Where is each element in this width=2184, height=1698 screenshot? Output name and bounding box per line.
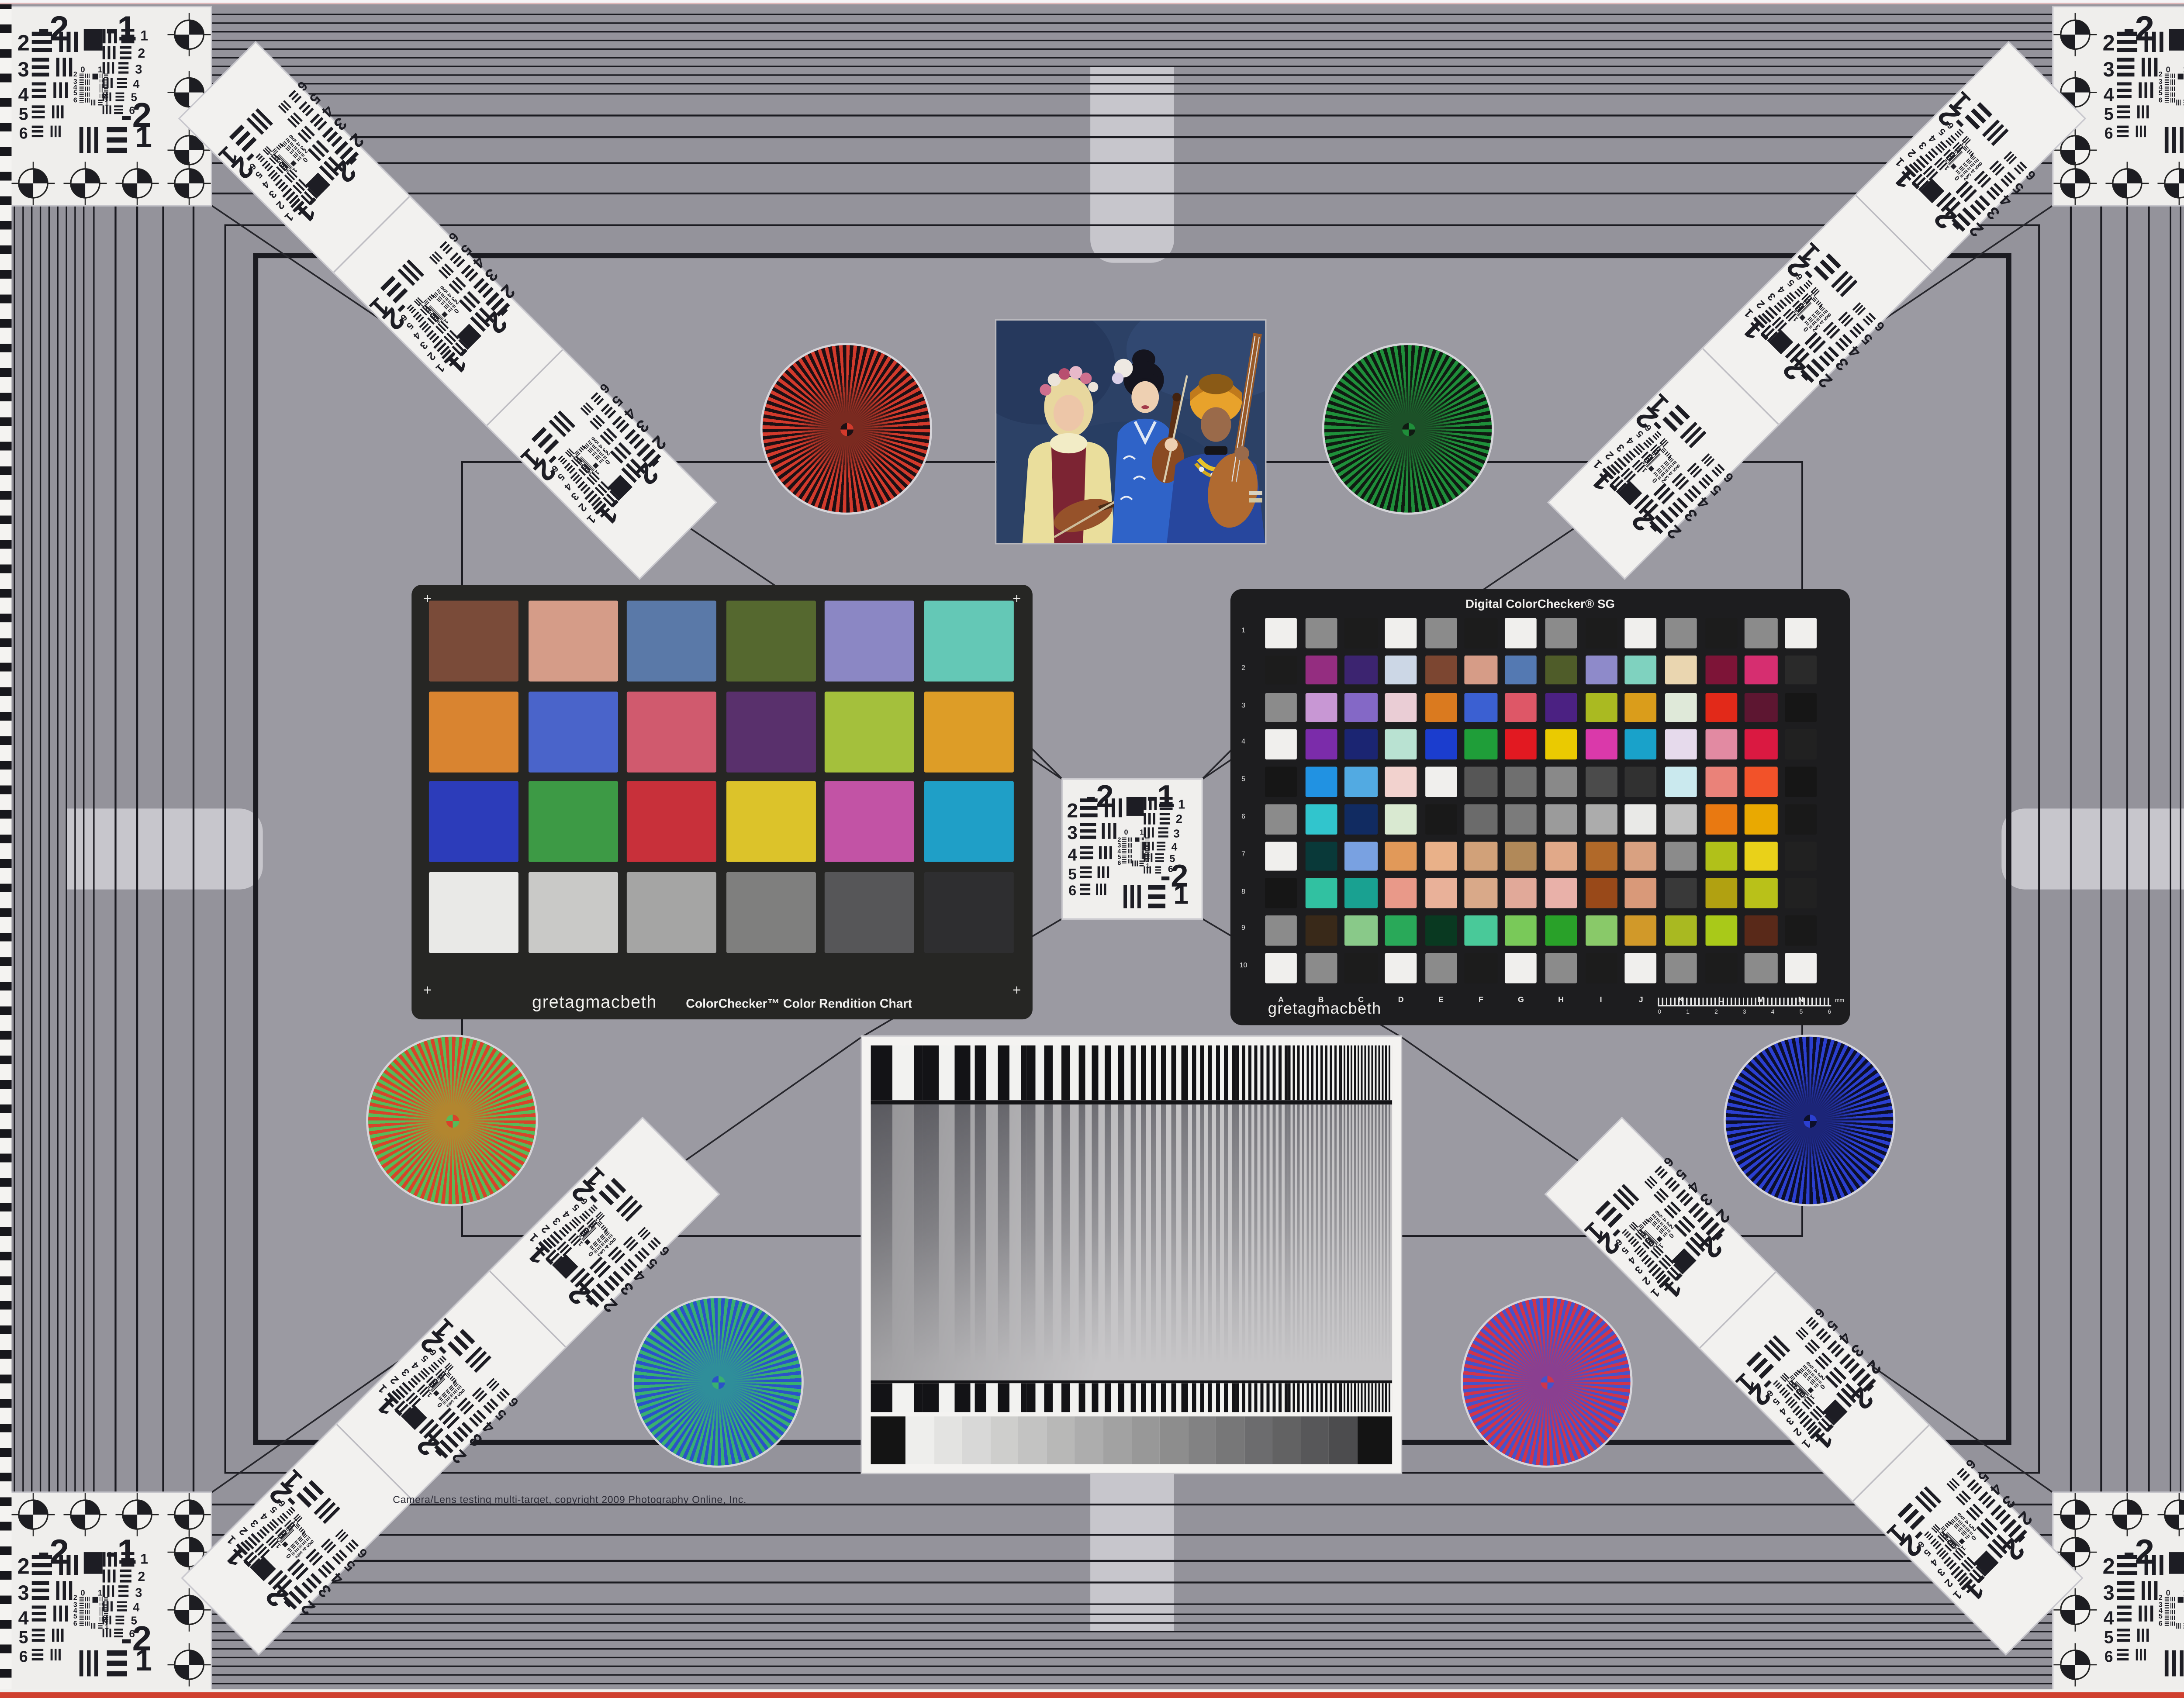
grayscale-step bbox=[1160, 1416, 1188, 1464]
usaf-bar-group bbox=[600, 428, 618, 446]
quadrant-circle-icon bbox=[63, 162, 107, 205]
sg-col-label: B bbox=[1305, 996, 1337, 1005]
usaf-bar-group bbox=[1098, 866, 1109, 878]
usaf-bar-group bbox=[408, 1375, 422, 1389]
sg-row-label: 3 bbox=[1236, 703, 1251, 710]
cc-patch bbox=[825, 781, 914, 862]
sweep-bar-segment bbox=[871, 1046, 923, 1101]
usaf-label: 2 bbox=[1640, 1274, 1652, 1287]
usaf-bar-group bbox=[2170, 80, 2174, 85]
usaf-bar-group bbox=[1977, 1518, 1997, 1539]
usaf-bar-group bbox=[1671, 460, 1676, 466]
sg-ruler-number: 1 bbox=[1686, 1007, 1690, 1015]
quadrant-circle-mark bbox=[115, 1493, 159, 1536]
usaf-bar-group bbox=[103, 1569, 115, 1583]
cc-patch bbox=[923, 871, 1013, 952]
usaf-bar-group bbox=[581, 402, 594, 416]
sg-patch bbox=[1625, 879, 1657, 908]
usaf-bar-group bbox=[289, 90, 302, 103]
sg-patch bbox=[1665, 692, 1697, 722]
sg-patch bbox=[1745, 879, 1777, 908]
usaf-bar-group bbox=[1096, 884, 1106, 895]
usaf-bar-group bbox=[1838, 311, 1854, 327]
sg-patch bbox=[1665, 618, 1697, 648]
registration-cross-icon: + bbox=[1013, 594, 1021, 608]
quadrant-circle-icon bbox=[2105, 1493, 2149, 1536]
sg-ruler-number: 3 bbox=[1743, 1007, 1746, 1015]
usaf-bar-group bbox=[1141, 856, 1144, 859]
sg-patch bbox=[1705, 692, 1737, 722]
sg-patch bbox=[1345, 692, 1377, 722]
usaf-label: 1 bbox=[105, 1626, 109, 1632]
usaf-label: 2 bbox=[1791, 1425, 1803, 1438]
usaf-label: 6 bbox=[295, 79, 309, 93]
usaf-bar-group bbox=[85, 98, 89, 103]
sg-patch bbox=[1345, 618, 1377, 648]
usaf-bar-group bbox=[2118, 31, 2137, 52]
sg-patch bbox=[1425, 692, 1457, 722]
sg-patch bbox=[1385, 655, 1417, 685]
usaf-bar-group bbox=[1160, 797, 1173, 810]
sweep-bar-segment bbox=[1236, 1383, 1288, 1412]
usaf-label: 2 bbox=[1755, 298, 1767, 310]
sg-patch bbox=[1345, 767, 1377, 797]
sg-patch bbox=[1265, 655, 1297, 685]
sg-patch bbox=[1305, 730, 1337, 759]
sg-patch bbox=[1505, 841, 1537, 871]
sweep-bar-segment bbox=[1340, 1383, 1392, 1412]
grayscale-step bbox=[1188, 1416, 1216, 1464]
usaf-bar-group bbox=[1081, 884, 1090, 895]
usaf-bar-group bbox=[608, 1234, 613, 1239]
usaf-bar-group bbox=[2170, 92, 2174, 97]
usaf-label: 5 bbox=[19, 107, 28, 124]
usaf-bar-group bbox=[2164, 1622, 2169, 1626]
usaf-bar-group bbox=[1815, 317, 1820, 322]
usaf-label: 3 bbox=[2103, 1584, 2115, 1604]
usaf-bar-group bbox=[1128, 843, 1132, 847]
usaf-bar-group bbox=[119, 46, 131, 59]
sg-patch bbox=[1385, 730, 1417, 759]
sweep-bottom-bars bbox=[871, 1383, 1393, 1412]
usaf-bar-group bbox=[1665, 1177, 1681, 1192]
sweep-bar-segment bbox=[1027, 1383, 1079, 1412]
sg-patch bbox=[1305, 804, 1337, 834]
usaf-bar-group bbox=[99, 1607, 103, 1611]
sg-patch bbox=[1585, 767, 1617, 797]
usaf-bar-group bbox=[1633, 443, 1645, 456]
usaf-bar-group bbox=[1950, 164, 1956, 170]
sg-patch bbox=[1305, 618, 1337, 648]
sg-patch bbox=[1625, 692, 1657, 722]
sg-patch bbox=[1585, 618, 1617, 648]
usaf-bar-group bbox=[335, 1529, 349, 1543]
usaf-bar-group bbox=[1141, 842, 1144, 846]
sg-col-label: J bbox=[1625, 996, 1657, 1005]
sg-patch bbox=[1505, 692, 1537, 722]
usaf-label: 3 bbox=[1918, 139, 1929, 151]
usaf-bar-group bbox=[305, 1549, 323, 1567]
sg-patch bbox=[1545, 953, 1577, 983]
sg-patch bbox=[1465, 730, 1497, 759]
usaf-bar-group bbox=[1915, 1487, 1942, 1513]
copyright-text: Camera/Lens testing multi-target, copyri… bbox=[393, 1496, 746, 1506]
quadrant-circle-icon bbox=[2053, 13, 2097, 56]
usaf-bar-group bbox=[90, 100, 96, 106]
center-usaf-content: -2-123456123456012345601-21 bbox=[1064, 781, 1200, 917]
usaf-label: 6 bbox=[73, 99, 77, 106]
usaf-label: 6 bbox=[446, 230, 460, 244]
sg-patch bbox=[1425, 618, 1457, 648]
usaf-bar-group bbox=[308, 140, 328, 161]
grayscale-step bbox=[934, 1416, 962, 1464]
sg-patch bbox=[1705, 730, 1737, 759]
sg-patch bbox=[1265, 879, 1297, 908]
edge-strip-bottom bbox=[0, 1689, 2184, 1698]
usaf-bar-group bbox=[2164, 98, 2169, 103]
usaf-bar-group bbox=[2178, 1597, 2183, 1602]
usaf-bar-group bbox=[1863, 313, 1876, 326]
usaf-bar-group bbox=[549, 411, 575, 438]
quadrant-circle-icon bbox=[168, 162, 211, 205]
usaf-bar-group bbox=[2135, 126, 2146, 138]
quadrant-circle-icon bbox=[168, 13, 211, 56]
usaf-label: 5 bbox=[2104, 1630, 2114, 1647]
usaf-bar-group bbox=[1081, 799, 1098, 818]
cc-patch bbox=[429, 871, 518, 952]
usaf-bar-group bbox=[2165, 1650, 2184, 1676]
sg-patch bbox=[1745, 618, 1777, 648]
usaf-bar-group bbox=[450, 252, 466, 268]
sg-patch bbox=[1705, 841, 1737, 871]
sg-col-label: L bbox=[1705, 996, 1737, 1005]
sg-patch bbox=[1425, 879, 1457, 908]
usaf-bar-group bbox=[1653, 1188, 1669, 1204]
usaf-label: 3 bbox=[1783, 1415, 1795, 1426]
sg-patch bbox=[1665, 730, 1697, 759]
usaf-bar-group bbox=[2139, 1606, 2153, 1622]
usaf-bar-group bbox=[1123, 843, 1127, 847]
usaf-bar-group bbox=[297, 126, 315, 144]
sweep-bar-segment bbox=[1079, 1046, 1131, 1101]
sg-patch bbox=[1585, 879, 1617, 908]
cc-patch bbox=[528, 691, 617, 772]
usaf-label: 3 bbox=[551, 1215, 563, 1227]
usaf-bar-group bbox=[1963, 169, 1968, 175]
usaf-label: 6 bbox=[1963, 1456, 1978, 1471]
cc-patch bbox=[726, 871, 815, 952]
usaf-bar-group bbox=[1158, 827, 1168, 838]
usaf-bar-group bbox=[486, 1378, 500, 1391]
sg-row-label: 7 bbox=[1236, 852, 1251, 859]
usaf-bar-group bbox=[1141, 838, 1144, 841]
usaf-bar-group bbox=[1144, 812, 1156, 825]
usaf-bar-group bbox=[99, 1602, 103, 1606]
sg-patch bbox=[1585, 804, 1617, 834]
sg-row-label: 9 bbox=[1236, 926, 1251, 934]
usaf-bar-group bbox=[1128, 860, 1132, 864]
sg-row-label: 4 bbox=[1236, 740, 1251, 747]
cc-patch bbox=[429, 691, 518, 772]
usaf-label: 4 bbox=[18, 1608, 29, 1627]
sweep-bar-segment bbox=[923, 1383, 975, 1412]
usaf-label: 3 bbox=[18, 1584, 29, 1604]
corner-usaf-chart: -2-123456123456012345601-21 bbox=[14, 1535, 165, 1685]
sg-patch bbox=[1705, 953, 1737, 983]
quadrant-circle-icon bbox=[2157, 1493, 2184, 1536]
cc-patch bbox=[825, 871, 914, 952]
usaf-bar-group bbox=[1825, 1367, 1846, 1387]
usaf-bar-group bbox=[2170, 1609, 2174, 1614]
sg-patch bbox=[1785, 692, 1817, 722]
grayscale-step bbox=[905, 1416, 934, 1464]
sg-patch bbox=[1305, 916, 1337, 946]
usaf-bar-group bbox=[85, 74, 89, 79]
usaf-bar-group bbox=[32, 1581, 49, 1599]
sg-patch bbox=[1545, 692, 1577, 722]
sg-patch bbox=[1425, 730, 1457, 759]
usaf-bar-group bbox=[97, 100, 103, 106]
usaf-bar-group bbox=[1123, 838, 1127, 842]
sg-patch bbox=[1745, 730, 1777, 759]
sg-col-label: D bbox=[1385, 996, 1417, 1005]
usaf-bar-group bbox=[103, 1586, 114, 1598]
sg-patch bbox=[1665, 655, 1697, 685]
usaf-bar-group bbox=[1822, 309, 1828, 314]
usaf-bar-group bbox=[85, 1609, 89, 1614]
usaf-bar-group bbox=[1128, 838, 1132, 842]
quadrant-circle-mark bbox=[2105, 1493, 2149, 1536]
usaf-label: 3 bbox=[1615, 442, 1627, 453]
sweep-bar-segment bbox=[871, 1383, 923, 1412]
usaf-bar-group bbox=[612, 415, 630, 433]
usaf-bar-group bbox=[2003, 151, 2017, 165]
usaf-bar-group bbox=[2170, 74, 2174, 79]
sweep-bar-segment bbox=[1184, 1046, 1236, 1101]
sg-patch bbox=[1385, 767, 1417, 797]
usaf-bar-group bbox=[2169, 29, 2184, 50]
usaf-bar-group bbox=[299, 101, 314, 117]
sg-patch bbox=[1665, 767, 1697, 797]
sweep-bar-segment bbox=[1184, 1383, 1236, 1412]
usaf-label: 3 bbox=[135, 1587, 142, 1599]
quadrant-circle-icon bbox=[2157, 162, 2184, 205]
quadrant-circle-icon bbox=[2105, 162, 2149, 205]
cc-patch-grid bbox=[429, 601, 1013, 952]
sg-patch bbox=[1425, 916, 1457, 946]
usaf-bar-group bbox=[2176, 1623, 2181, 1629]
usaf-bar-group bbox=[1676, 1189, 1694, 1207]
quadrant-circle-mark bbox=[63, 162, 107, 205]
usaf-bar-group bbox=[79, 86, 83, 91]
usaf-label: 3 bbox=[249, 1517, 261, 1529]
sg-patch bbox=[1385, 804, 1417, 834]
usaf-bar-group bbox=[287, 1559, 308, 1580]
quadrant-circle-mark bbox=[11, 1493, 55, 1536]
usaf-bar-group bbox=[1701, 453, 1714, 467]
sweep-bar-segment bbox=[1131, 1046, 1183, 1101]
usaf-bar-group bbox=[103, 1552, 117, 1567]
usaf-bar-group bbox=[2170, 98, 2174, 103]
usaf-bar-group bbox=[2144, 31, 2163, 52]
usaf-bar-group bbox=[1970, 162, 1975, 167]
usaf-bar-group bbox=[1099, 846, 1112, 859]
sg-patch bbox=[1505, 804, 1537, 834]
usaf-bar-group bbox=[104, 1602, 108, 1606]
usaf-label: 4 bbox=[1171, 842, 1178, 853]
usaf-bar-group bbox=[459, 291, 480, 312]
usaf-bar-group bbox=[1123, 860, 1127, 864]
usaf-bar-group bbox=[121, 29, 135, 44]
usaf-bar-group bbox=[1613, 1184, 1639, 1211]
usaf-bar-group bbox=[1799, 315, 1805, 321]
usaf-bar-group bbox=[79, 1597, 83, 1602]
quadrant-circle-mark bbox=[2105, 162, 2149, 205]
sweep-rule-top bbox=[871, 1100, 1393, 1104]
usaf-bar-group bbox=[346, 1539, 359, 1553]
usaf-bar-group bbox=[590, 414, 605, 430]
usaf-bar-group bbox=[1635, 1245, 1647, 1257]
cc-patch bbox=[726, 781, 815, 862]
usaf-bar-group bbox=[1973, 158, 1979, 163]
usaf-label: 6 bbox=[2105, 127, 2113, 143]
usaf-bar-group bbox=[610, 442, 631, 463]
usaf-bar-group bbox=[53, 1606, 68, 1622]
usaf-bar-group bbox=[1104, 799, 1122, 818]
usaf-bar-group bbox=[1159, 812, 1170, 825]
cc-patch bbox=[726, 601, 815, 681]
usaf-bar-group bbox=[1668, 464, 1673, 469]
sg-row-label: 10 bbox=[1236, 963, 1251, 971]
usaf-label: 3 bbox=[18, 60, 29, 81]
sg-patch bbox=[1345, 730, 1377, 759]
usaf-bar-group bbox=[2164, 1615, 2169, 1620]
sg-col-label: F bbox=[1465, 996, 1497, 1005]
usaf-bar-group bbox=[429, 251, 443, 265]
usaf-bar-group bbox=[2169, 1552, 2184, 1573]
sg-patch bbox=[1665, 879, 1697, 908]
usaf-bar-group bbox=[2170, 1622, 2174, 1626]
usaf-label: 2 bbox=[1176, 814, 1182, 825]
usaf-bar-group bbox=[1711, 464, 1725, 477]
usaf-bar-group bbox=[2170, 86, 2174, 91]
sweep-bar-segment bbox=[975, 1046, 1027, 1101]
sg-patch bbox=[1585, 916, 1617, 946]
usaf-bar-group bbox=[119, 1569, 131, 1583]
usaf-bar-group bbox=[1989, 160, 2005, 176]
quadrant-circle-mark bbox=[115, 162, 159, 205]
usaf-bar-group bbox=[97, 1623, 103, 1629]
sg-patch bbox=[1545, 655, 1577, 685]
sg-ruler-number: 5 bbox=[1800, 1007, 1803, 1015]
usaf-bar-group bbox=[604, 1238, 609, 1243]
photo-musicians-illustration bbox=[996, 321, 1265, 543]
usaf-bar-group bbox=[1822, 321, 1840, 339]
sg-col-label: N bbox=[1785, 996, 1817, 1005]
sg-col-label: C bbox=[1345, 996, 1377, 1005]
usaf-bar-group bbox=[440, 241, 453, 254]
sg-row-label: 1 bbox=[1236, 628, 1251, 635]
sg-patch bbox=[1305, 953, 1337, 983]
usaf-label: 3 bbox=[135, 63, 142, 76]
usaf-bar-group bbox=[2164, 92, 2169, 97]
sg-patch bbox=[1585, 841, 1617, 871]
usaf-label: 6 bbox=[597, 381, 612, 395]
usaf-bar-group bbox=[2118, 1629, 2130, 1642]
sg-patch bbox=[1745, 953, 1777, 983]
usaf-label: 6 bbox=[507, 1394, 521, 1409]
sg-patch bbox=[1425, 804, 1457, 834]
sg-patch bbox=[1505, 767, 1537, 797]
usaf-label: 4 bbox=[2104, 1608, 2114, 1627]
usaf-bar-group bbox=[590, 1257, 610, 1277]
usaf-bar-group bbox=[1687, 462, 1703, 478]
grayscale-step bbox=[1244, 1416, 1273, 1464]
cc-patch bbox=[528, 601, 617, 681]
quadrant-circle-icon bbox=[2053, 162, 2097, 205]
usaf-label: 6 bbox=[1873, 319, 1887, 333]
usaf-bar-group bbox=[1973, 170, 1991, 188]
edge-ruler-left bbox=[0, 0, 11, 1698]
usaf-label: 2 bbox=[576, 501, 588, 513]
usaf-label: 6 bbox=[2024, 168, 2038, 182]
usaf-bar-group bbox=[1966, 166, 1971, 171]
usaf-bar-group bbox=[79, 98, 83, 103]
usaf-label: 3 bbox=[569, 490, 581, 502]
usaf-bar-group bbox=[1815, 1353, 1833, 1370]
sg-patch bbox=[1425, 767, 1457, 797]
sg-patch bbox=[1265, 804, 1297, 834]
usaf-bar-group bbox=[2135, 1649, 2146, 1661]
usaf-bar-group bbox=[1081, 846, 1093, 859]
colorchecker-classic-chart: + + + + gretagmacbeth ColorChecker™ Colo… bbox=[411, 585, 1033, 1019]
usaf-bar-group bbox=[1133, 861, 1138, 866]
usaf-bar-group bbox=[32, 58, 49, 76]
usaf-bar-group bbox=[305, 1536, 311, 1541]
usaf-bar-group bbox=[1806, 1316, 1820, 1330]
quadrant-circle-mark bbox=[2053, 1493, 2097, 1536]
grayscale-step bbox=[990, 1416, 1019, 1464]
usaf-bar-group bbox=[1654, 483, 1674, 504]
sg-col-label: G bbox=[1505, 996, 1537, 1005]
usaf-bar-group bbox=[1664, 1201, 1682, 1219]
usaf-bar-group bbox=[1804, 1339, 1820, 1355]
usaf-bar-group bbox=[32, 83, 47, 98]
quadrant-circle-icon bbox=[115, 162, 159, 205]
sg-patch bbox=[1545, 618, 1577, 648]
sweep-bar-segment bbox=[923, 1046, 975, 1101]
usaf-bar-group bbox=[2164, 80, 2169, 85]
usaf-bar-group bbox=[1144, 827, 1154, 838]
sg-patch bbox=[1585, 953, 1617, 983]
cc-patch bbox=[627, 691, 716, 772]
usaf-bar-group bbox=[2165, 127, 2184, 152]
usaf-bar-group bbox=[570, 472, 583, 484]
sg-patch bbox=[1345, 916, 1377, 946]
sg-patch bbox=[1465, 618, 1497, 648]
usaf-bar-group bbox=[287, 112, 303, 128]
usaf-bar-group bbox=[1805, 332, 1825, 352]
quadrant-circle-mark bbox=[168, 162, 211, 205]
usaf-bar-group bbox=[79, 1615, 83, 1620]
usaf-bar-group bbox=[268, 169, 280, 182]
usaf-bar-group bbox=[1956, 1490, 1971, 1506]
usaf-label: 3 bbox=[1935, 1566, 1946, 1577]
usaf-bar-group bbox=[85, 1597, 89, 1602]
usaf-bar-group bbox=[1764, 1336, 1790, 1362]
sg-patch bbox=[1265, 916, 1297, 946]
usaf-label: 3 bbox=[418, 339, 429, 351]
